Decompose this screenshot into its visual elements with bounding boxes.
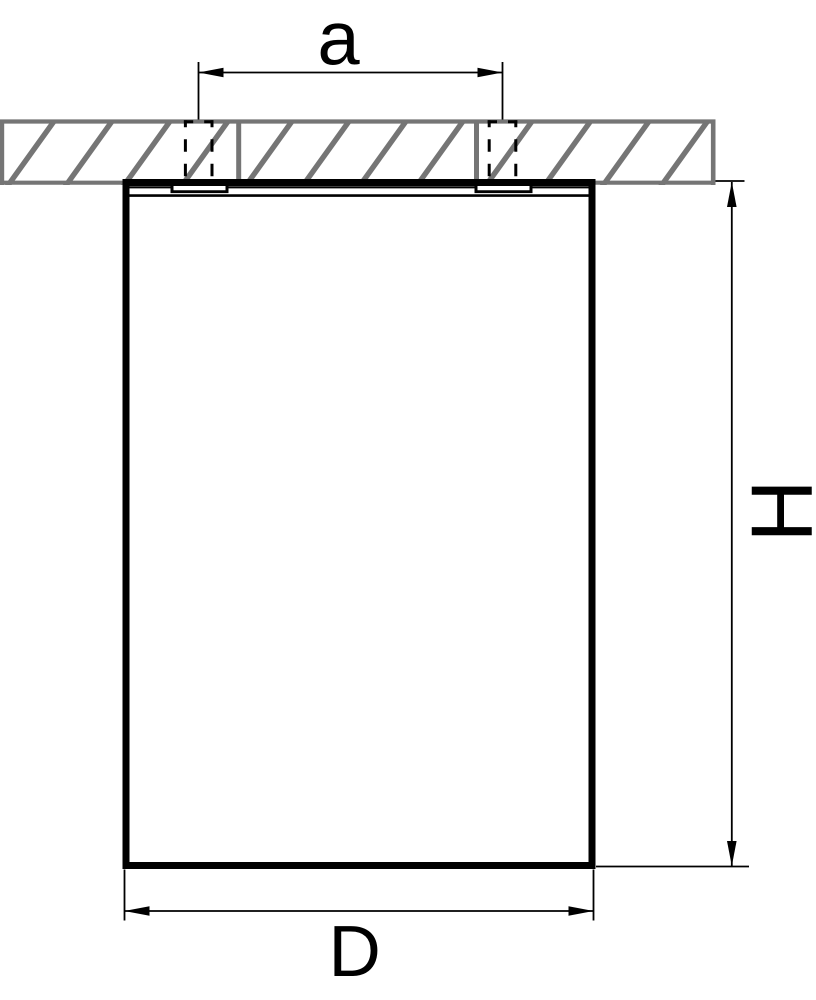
svg-text:H: H	[734, 479, 816, 542]
svg-text:D: D	[329, 911, 381, 992]
svg-text:a: a	[317, 0, 360, 82]
